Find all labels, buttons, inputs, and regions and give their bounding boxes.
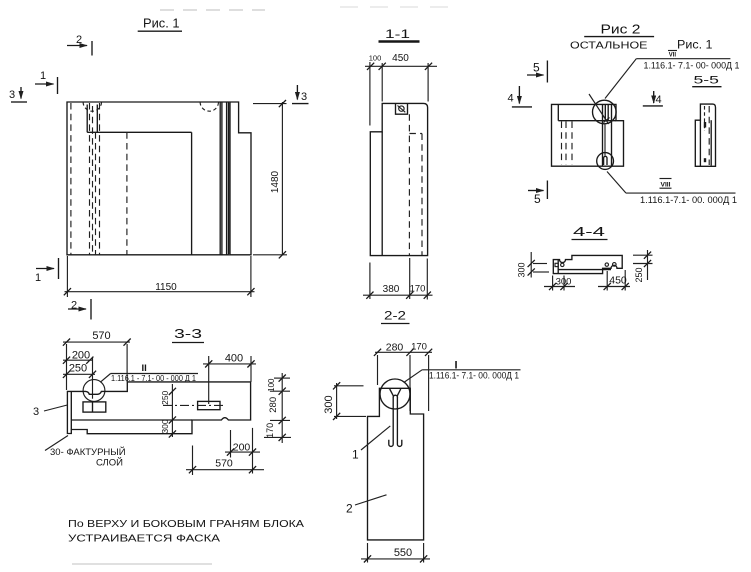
svg-text:1.116.1- 7.1- 00. 000Д 1: 1.116.1- 7.1- 00. 000Д 1: [429, 371, 519, 381]
svg-text:1.116.1-7.1- 00. 000Д 1: 1.116.1-7.1- 00. 000Д 1: [640, 195, 737, 206]
svg-text:400: 400: [225, 353, 243, 365]
svg-text:VII: VII: [669, 52, 676, 59]
svg-text:1-1: 1-1: [385, 27, 410, 41]
svg-text:II: II: [142, 363, 147, 374]
svg-text:570: 570: [92, 330, 110, 342]
svg-text:Рис. 1: Рис. 1: [143, 17, 180, 31]
svg-text:1480: 1480: [270, 170, 281, 193]
svg-text:450: 450: [392, 53, 409, 64]
svg-text:VIII: VIII: [661, 182, 671, 189]
svg-text:I: I: [455, 360, 458, 372]
svg-text:30- ФАКТУРНЫЙ: 30- ФАКТУРНЫЙ: [50, 446, 126, 458]
svg-text:200: 200: [233, 442, 251, 454]
svg-text:450: 450: [609, 275, 627, 287]
svg-text:Рис. 1: Рис. 1: [677, 40, 713, 52]
svg-text:1: 1: [35, 272, 41, 284]
svg-text:3: 3: [33, 406, 39, 418]
svg-text:170: 170: [265, 423, 275, 438]
svg-text:300: 300: [556, 277, 572, 288]
svg-text:Рис 2: Рис 2: [601, 23, 641, 37]
svg-text:5-5: 5-5: [694, 75, 720, 87]
svg-text:ОСТАЛЬНОЕ: ОСТАЛЬНОЕ: [570, 41, 648, 52]
svg-text:300: 300: [160, 419, 170, 433]
svg-text:250: 250: [69, 363, 87, 375]
svg-text:170: 170: [410, 284, 426, 295]
svg-text:2-2: 2-2: [384, 309, 406, 323]
svg-text:1.116.1- 7.1- 00- 000Д 1: 1.116.1- 7.1- 00- 000Д 1: [644, 61, 740, 71]
svg-text:2: 2: [346, 502, 353, 516]
svg-text:170: 170: [411, 342, 427, 353]
svg-text:2: 2: [76, 34, 82, 46]
svg-text:3: 3: [301, 91, 307, 103]
svg-text:4-4: 4-4: [573, 225, 605, 239]
svg-text:УСТРАИВАЕТСЯ ФАСКА: УСТРАИВАЕТСЯ ФАСКА: [68, 533, 220, 545]
svg-text:1: 1: [40, 70, 46, 82]
svg-text:1150: 1150: [155, 282, 177, 293]
svg-text:5: 5: [533, 61, 540, 75]
svg-text:300: 300: [323, 395, 335, 413]
svg-text:300: 300: [516, 262, 526, 277]
svg-text:4: 4: [656, 94, 662, 106]
svg-text:3-3: 3-3: [174, 327, 202, 341]
svg-text:570: 570: [215, 458, 233, 470]
svg-text:200: 200: [72, 350, 90, 362]
svg-text:1: 1: [352, 448, 359, 462]
svg-text:По ВЕРХУ И БОКОВЫМ ГРАНЯМ БЛОК: По ВЕРХУ И БОКОВЫМ ГРАНЯМ БЛОКА: [68, 518, 304, 530]
svg-text:250: 250: [634, 267, 644, 282]
svg-text:550: 550: [394, 547, 412, 559]
svg-text:100: 100: [369, 54, 382, 63]
svg-text:100: 100: [267, 378, 276, 392]
svg-text:380: 380: [383, 284, 400, 295]
svg-text:280: 280: [386, 342, 404, 354]
svg-text:280: 280: [268, 397, 279, 413]
svg-text:5: 5: [534, 192, 541, 206]
svg-text:250: 250: [160, 390, 170, 404]
svg-text:4: 4: [508, 93, 514, 105]
svg-text:2: 2: [71, 300, 77, 312]
svg-text:3: 3: [9, 89, 15, 101]
svg-text:СЛОЙ: СЛОЙ: [96, 457, 123, 469]
